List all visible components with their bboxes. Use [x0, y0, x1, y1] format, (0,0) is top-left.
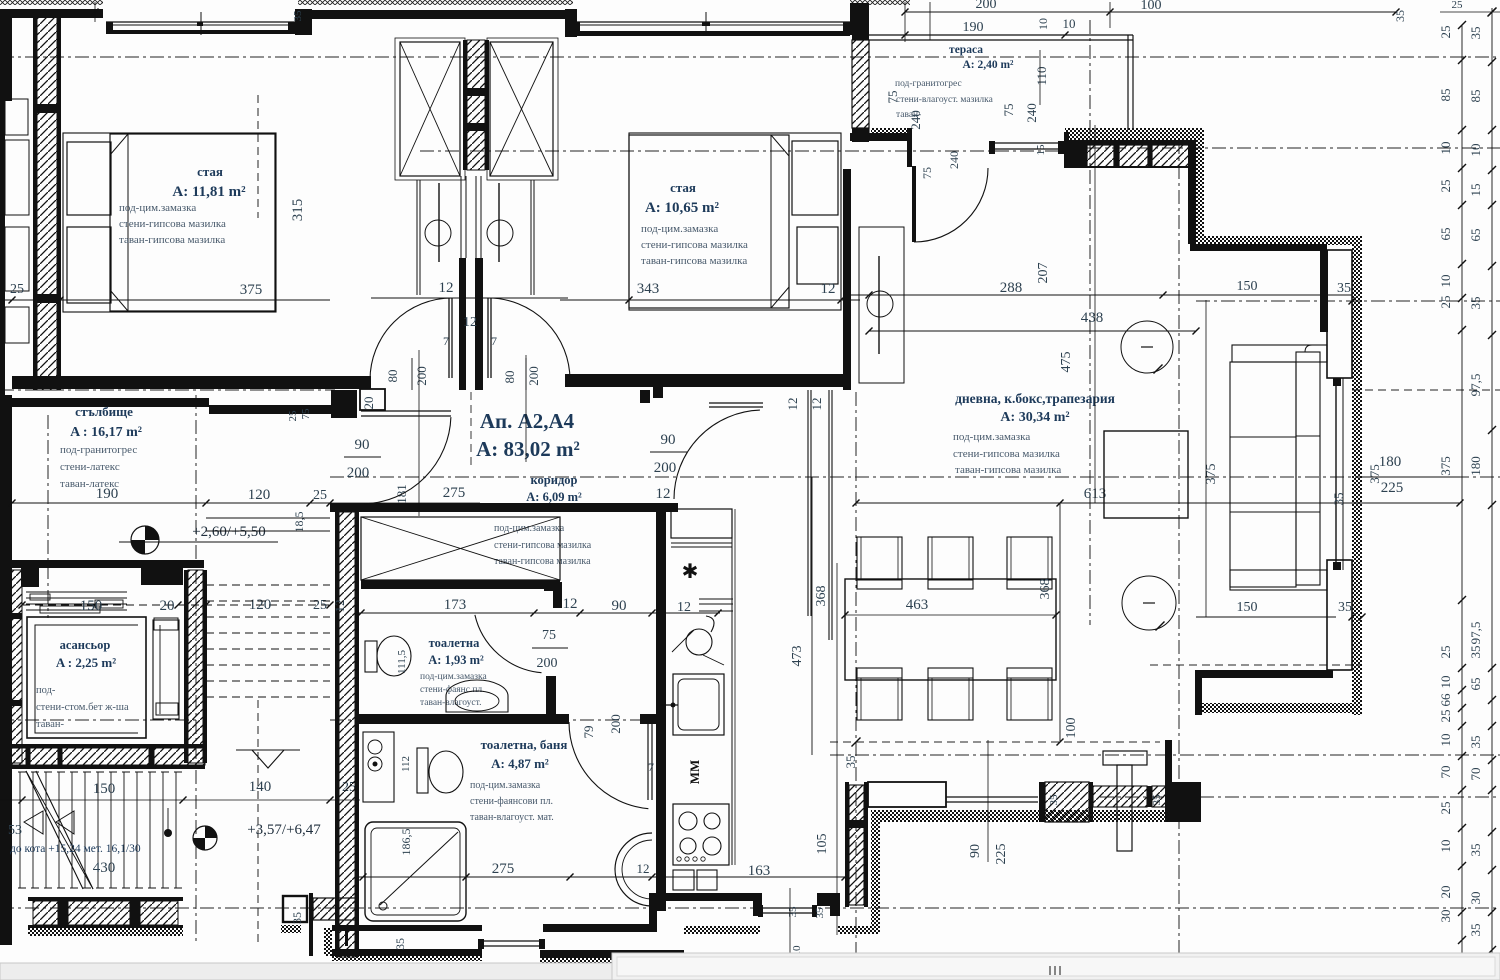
svg-text:стая: стая — [197, 164, 223, 179]
svg-text:35: 35 — [1468, 646, 1483, 659]
svg-text:25: 25 — [1438, 802, 1453, 815]
svg-text:100: 100 — [1141, 0, 1162, 13]
svg-text:375: 375 — [1438, 456, 1453, 476]
svg-text:под-цим.замазка: под-цим.замазка — [470, 780, 541, 791]
svg-text:под-: под- — [36, 685, 56, 696]
svg-text:под-гранитогрес: под-гранитогрес — [895, 79, 962, 89]
svg-text:A: 83,02 m²: A: 83,02 m² — [476, 437, 580, 461]
svg-text:таван-гипсова мазилка: таван-гипсова мазилка — [955, 464, 1061, 476]
svg-text:асансьор: асансьор — [60, 638, 111, 652]
svg-text:80: 80 — [385, 370, 400, 383]
svg-text:A: 30,34 m²: A: 30,34 m² — [1000, 410, 1069, 425]
svg-text:25: 25 — [1438, 646, 1453, 659]
svg-text:75: 75 — [1001, 104, 1016, 117]
svg-text:10: 10 — [1063, 16, 1076, 31]
svg-text:12: 12 — [463, 315, 477, 330]
svg-text:12: 12 — [637, 861, 650, 876]
svg-text:дневна, к.бокс,трапезария: дневна, к.бокс,трапезария — [955, 391, 1115, 406]
svg-text:стени-гипсова мазилка: стени-гипсова мазилка — [641, 239, 748, 251]
svg-text:97,5: 97,5 — [1468, 622, 1483, 645]
svg-text:стени-гипсова мазилка: стени-гипсова мазилка — [119, 218, 226, 230]
svg-text:75: 75 — [885, 91, 900, 104]
svg-text:A : 16,17 m²: A : 16,17 m² — [70, 425, 142, 440]
svg-text:150: 150 — [1237, 279, 1258, 294]
svg-text:35: 35 — [1331, 493, 1346, 506]
svg-text:таван-гипсова мазилка: таван-гипсова мазилка — [494, 556, 591, 567]
svg-text:10: 10 — [1438, 275, 1453, 288]
svg-text:343: 343 — [637, 281, 660, 297]
svg-text:18,5: 18,5 — [292, 512, 306, 533]
svg-text:7: 7 — [491, 334, 497, 348]
svg-text:стени-гипсова мазилка: стени-гипсова мазилка — [494, 540, 592, 551]
svg-text:150: 150 — [80, 598, 103, 614]
svg-text:97,5: 97,5 — [1468, 374, 1483, 397]
svg-text:200: 200 — [526, 366, 541, 386]
svg-text:200: 200 — [608, 714, 623, 734]
svg-text:стени-фаянсови пл.: стени-фаянсови пл. — [470, 796, 553, 807]
svg-text:35: 35 — [292, 10, 304, 22]
svg-text:12: 12 — [821, 281, 836, 297]
svg-text:475: 475 — [1059, 352, 1074, 373]
svg-text:368: 368 — [1038, 579, 1053, 600]
svg-text:225: 225 — [994, 844, 1009, 865]
svg-text:стени-стом.бет ж-ша: стени-стом.бет ж-ша — [36, 702, 129, 713]
svg-text:25: 25 — [1438, 180, 1453, 193]
svg-text:150: 150 — [1237, 600, 1258, 615]
svg-text:стълбище: стълбище — [75, 404, 133, 419]
svg-text:35: 35 — [1468, 297, 1483, 310]
svg-text:25: 25 — [1438, 296, 1453, 309]
svg-text:186,5: 186,5 — [399, 829, 413, 856]
svg-text:200: 200 — [537, 656, 558, 671]
svg-text:473: 473 — [790, 646, 805, 667]
svg-text:140: 140 — [249, 779, 272, 795]
svg-text:35: 35 — [1338, 600, 1352, 615]
svg-text:90: 90 — [661, 432, 676, 448]
svg-text:111,5: 111,5 — [396, 650, 408, 674]
svg-text:430: 430 — [93, 860, 116, 876]
svg-text:150: 150 — [93, 781, 116, 797]
svg-text:12: 12 — [563, 596, 578, 612]
svg-text:163: 163 — [748, 863, 771, 879]
svg-text:таван-влагоуст.: таван-влагоуст. — [420, 698, 481, 708]
svg-text:35: 35 — [1048, 794, 1060, 806]
svg-text:288: 288 — [1000, 280, 1023, 296]
svg-text:под-цим.замазка: под-цим.замазка — [641, 223, 718, 235]
svg-text:90: 90 — [968, 844, 983, 858]
svg-text:12: 12 — [656, 486, 671, 502]
svg-text:ММ: ММ — [687, 760, 702, 785]
svg-text:тоалетна, баня: тоалетна, баня — [481, 737, 568, 752]
svg-text:12: 12 — [809, 398, 824, 411]
svg-text:75: 75 — [300, 408, 312, 420]
svg-text:200: 200 — [414, 366, 429, 386]
svg-text:35: 35 — [1468, 844, 1483, 857]
svg-text:15: 15 — [1468, 184, 1483, 197]
svg-text:A: 6,09 m²: A: 6,09 m² — [526, 490, 582, 504]
svg-text:75: 75 — [920, 167, 934, 179]
svg-text:25: 25 — [287, 410, 299, 422]
svg-text:A: 10,65 m²: A: 10,65 m² — [645, 200, 720, 216]
svg-text:Ап. A2,A4: Ап. A2,A4 — [480, 409, 575, 433]
svg-text:20: 20 — [160, 598, 175, 614]
svg-text:35: 35 — [1151, 794, 1163, 806]
svg-text:35: 35 — [1468, 924, 1483, 937]
svg-text:A : 2,25 m²: A : 2,25 m² — [56, 655, 116, 670]
svg-text:66: 66 — [1438, 693, 1453, 707]
svg-text:10: 10 — [1036, 18, 1050, 30]
svg-text:35: 35 — [787, 906, 799, 918]
svg-text:53: 53 — [8, 823, 22, 838]
svg-text:315: 315 — [290, 199, 306, 222]
svg-text:20: 20 — [1438, 886, 1453, 899]
svg-text:207: 207 — [1036, 263, 1051, 284]
svg-text:200: 200 — [976, 0, 997, 12]
svg-text:65: 65 — [1468, 229, 1483, 242]
svg-text:35: 35 — [393, 938, 407, 950]
svg-text:438: 438 — [1081, 310, 1104, 326]
svg-text:25: 25 — [1438, 26, 1453, 39]
svg-text:7: 7 — [443, 334, 449, 348]
svg-text:стени-латекс: стени-латекс — [60, 461, 120, 473]
svg-text:10: 10 — [1438, 840, 1453, 853]
svg-text:70: 70 — [1468, 768, 1483, 781]
svg-text:до кота +15,24 мет. 16,1/30: до кота +15,24 мет. 16,1/30 — [10, 843, 141, 855]
svg-text:375: 375 — [1367, 464, 1382, 484]
svg-text:25: 25 — [1452, 0, 1464, 11]
svg-text:120: 120 — [248, 487, 271, 503]
svg-text:35: 35 — [1468, 736, 1483, 749]
svg-text:190: 190 — [963, 20, 984, 35]
svg-text:12: 12 — [677, 600, 691, 615]
svg-text:25: 25 — [313, 598, 327, 613]
svg-text:65: 65 — [1438, 228, 1453, 241]
svg-text:240: 240 — [908, 110, 923, 130]
svg-text:+2,60/+5,50: +2,60/+5,50 — [192, 524, 266, 540]
svg-text:35: 35 — [814, 907, 826, 919]
svg-text:105: 105 — [815, 834, 830, 855]
svg-text:75: 75 — [542, 628, 556, 643]
svg-text:35: 35 — [1468, 27, 1483, 40]
svg-text:A: 11,81 m²: A: 11,81 m² — [172, 184, 246, 200]
svg-text:35: 35 — [1337, 281, 1351, 296]
svg-text:25: 25 — [1438, 710, 1453, 723]
svg-text:30: 30 — [1438, 910, 1453, 923]
svg-text:тераса: тераса — [949, 44, 983, 56]
svg-text:79: 79 — [581, 726, 596, 739]
svg-text:35: 35 — [1393, 10, 1407, 22]
svg-text:200: 200 — [347, 465, 370, 481]
svg-text:таван-гипсова мазилка: таван-гипсова мазилка — [641, 255, 747, 267]
svg-text:+3,57/+6,47: +3,57/+6,47 — [247, 822, 321, 838]
svg-text:240: 240 — [1024, 103, 1039, 123]
svg-text:190: 190 — [96, 486, 119, 502]
svg-text:стени-фаянс.пл.: стени-фаянс.пл. — [420, 684, 485, 695]
svg-text:375: 375 — [240, 282, 263, 298]
svg-text:таван-влагоуст. мат.: таван-влагоуст. мат. — [470, 812, 554, 823]
svg-text:90: 90 — [612, 598, 627, 614]
svg-text:12: 12 — [785, 398, 800, 411]
svg-text:15: 15 — [1035, 144, 1047, 156]
svg-text:коридор: коридор — [531, 473, 578, 487]
svg-text:200: 200 — [654, 460, 677, 476]
svg-text:12: 12 — [332, 600, 347, 613]
svg-text:таван-гипсова мазилка: таван-гипсова мазилка — [119, 234, 225, 246]
svg-text:✱: ✱ — [682, 561, 699, 583]
svg-text:10: 10 — [1438, 734, 1453, 747]
svg-text:463: 463 — [906, 597, 929, 613]
svg-text:120: 120 — [249, 597, 272, 613]
svg-text:A: 1,93 m²: A: 1,93 m² — [428, 653, 484, 667]
svg-text:240: 240 — [947, 151, 961, 169]
svg-text:A: 4,87 m²: A: 4,87 m² — [491, 756, 549, 771]
svg-text:35: 35 — [290, 912, 304, 924]
svg-text:35: 35 — [843, 756, 858, 769]
svg-text:30: 30 — [1468, 892, 1483, 905]
svg-text:12: 12 — [439, 280, 454, 296]
svg-text:225: 225 — [1381, 480, 1404, 496]
svg-text:275: 275 — [443, 485, 466, 501]
svg-text:85: 85 — [1468, 90, 1483, 103]
svg-text:10: 10 — [1438, 676, 1453, 689]
svg-text:тоалетна: тоалетна — [429, 636, 480, 650]
svg-text:A: 2,40 m²: A: 2,40 m² — [962, 59, 1014, 71]
svg-text:80: 80 — [502, 371, 517, 384]
svg-text:70: 70 — [1438, 766, 1453, 779]
svg-text:180: 180 — [1468, 456, 1483, 476]
svg-text:стени-влагоуст. мазилка: стени-влагоуст. мазилка — [896, 95, 994, 105]
svg-text:173: 173 — [444, 597, 467, 613]
svg-text:180: 180 — [1379, 454, 1402, 470]
svg-text:65: 65 — [1468, 678, 1483, 691]
svg-text:7: 7 — [648, 760, 654, 774]
svg-text:112: 112 — [400, 756, 412, 772]
svg-text:под-цим.замазка: под-цим.замазка — [119, 202, 196, 214]
svg-text:10: 10 — [1438, 142, 1453, 155]
svg-text:под-гранитогрес: под-гранитогрес — [60, 444, 137, 456]
svg-text:таван-: таван- — [36, 719, 64, 730]
svg-text:стени-гипсова мазилка: стени-гипсова мазилка — [953, 448, 1060, 460]
svg-text:100: 100 — [1064, 718, 1079, 739]
svg-text:стая: стая — [670, 180, 696, 195]
svg-text:90: 90 — [355, 437, 370, 453]
svg-text:под-цим.замазка: под-цим.замазка — [494, 523, 565, 534]
svg-text:85: 85 — [1438, 89, 1453, 102]
svg-text:25: 25 — [10, 282, 24, 297]
svg-text:10: 10 — [1468, 144, 1483, 157]
svg-text:368: 368 — [814, 586, 829, 607]
svg-text:25: 25 — [313, 488, 327, 503]
svg-text:275: 275 — [492, 861, 515, 877]
svg-text:110: 110 — [1034, 66, 1049, 85]
svg-text:под-цим.замазка: под-цим.замазка — [953, 431, 1030, 443]
svg-text:20: 20 — [361, 397, 376, 410]
